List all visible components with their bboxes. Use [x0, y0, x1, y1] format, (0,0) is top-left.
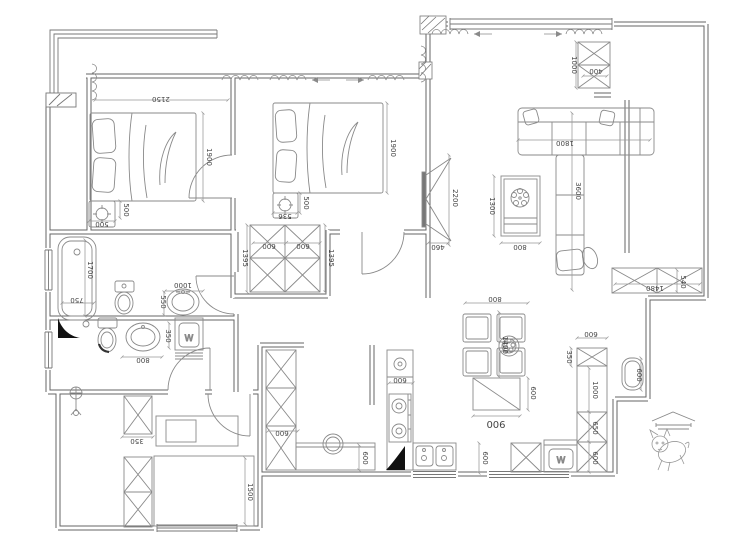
dim-label: 3600	[574, 182, 582, 200]
dim-label: 600	[296, 242, 309, 250]
bottom-cabinet	[511, 443, 541, 472]
dim-label: 1900	[205, 148, 213, 166]
dim-label: 800	[488, 295, 501, 303]
tatami-bed	[154, 456, 254, 526]
dim-label: 600	[584, 330, 597, 338]
dim-label: 350	[164, 329, 172, 342]
study-desk	[156, 416, 238, 446]
dim-label: 460	[431, 243, 444, 251]
floor-plan-page: W	[0, 0, 740, 550]
study-window	[154, 523, 240, 533]
west-window-1	[44, 248, 53, 292]
dim-label: 600	[481, 451, 489, 464]
top-window	[448, 17, 614, 31]
dim-label: 1000	[570, 56, 578, 74]
dim-label: 536	[278, 212, 292, 220]
door-bathroom	[196, 276, 234, 314]
dim-label: 1000	[174, 281, 192, 289]
gas-stove-icon	[389, 394, 411, 442]
west-window-2	[44, 330, 53, 370]
dim-label: 800	[513, 243, 526, 251]
dim-label: 1400	[501, 336, 509, 354]
dim-label: 600	[361, 451, 369, 464]
toilet-2	[98, 318, 117, 352]
bay-window	[46, 30, 217, 107]
sideboard	[473, 378, 520, 410]
dimension-labels: 2150 1900 500 500 1900 536 500 600 600 1…	[70, 56, 687, 501]
sink-counter	[413, 443, 456, 470]
study-cabinets	[124, 396, 152, 527]
curtain-bed1-left	[92, 64, 97, 100]
dim-label: 900	[486, 418, 505, 429]
dim-label: 1700	[86, 261, 94, 279]
dimension-lines	[62, 42, 700, 524]
dim-label: 1900	[389, 139, 397, 157]
dim-label: 600	[635, 368, 643, 381]
dim-label: 1300	[488, 197, 496, 215]
dim-label: 600	[275, 429, 288, 437]
washer2-label: W	[557, 456, 566, 466]
dim-label: 540	[679, 275, 687, 288]
dim-label: 500	[302, 196, 310, 209]
dim-label: 650	[591, 421, 599, 434]
double-sink-icon	[416, 446, 453, 466]
dim-label: 1800	[556, 139, 574, 147]
dim-label: 400	[589, 67, 602, 75]
washbasin-2	[126, 323, 160, 351]
entry-closet	[578, 42, 610, 88]
door-bedroom2	[362, 232, 404, 274]
dim-label: 600	[262, 242, 275, 250]
curtains	[92, 30, 602, 101]
toilet-1	[115, 281, 134, 314]
sofa	[518, 108, 654, 275]
dim-label: 1000	[591, 381, 599, 399]
dim-label: 600	[393, 376, 406, 384]
dim-label: 750	[70, 296, 83, 304]
door-laundry	[168, 348, 210, 390]
dim-label: 1480	[646, 284, 664, 292]
washing-machine-1: W	[175, 318, 203, 359]
dim-label: 1395	[327, 249, 335, 267]
double-bed-2	[273, 103, 383, 193]
kitchen-window-2	[487, 470, 571, 479]
corner-mark-kitchen	[386, 446, 405, 470]
dim-label: 500	[95, 220, 108, 228]
kitchen-tall-cabinets	[266, 350, 296, 470]
kitchen-window-1	[411, 470, 458, 479]
dim-label: 600	[529, 386, 537, 399]
dim-label: 2200	[451, 189, 459, 207]
dim-label: 1395	[241, 249, 249, 267]
washing-machine-2: W	[544, 440, 577, 472]
awning-icon	[652, 412, 695, 429]
washbasin-1	[167, 289, 199, 315]
corner-mark-bath	[58, 318, 89, 338]
dim-label: 550	[159, 295, 167, 308]
washer1-label: W	[185, 334, 194, 344]
double-bed-1	[90, 113, 196, 201]
door-study	[208, 394, 250, 436]
dim-label: 600	[591, 451, 599, 464]
dim-label: 2150	[152, 95, 170, 103]
dim-label: 500	[122, 203, 130, 216]
dim-label: 350	[130, 437, 143, 445]
dim-label: 800	[136, 356, 149, 364]
plant-icon	[511, 189, 529, 208]
wardrobe	[250, 225, 320, 292]
dim-label: 350	[565, 350, 573, 363]
floor-plan-canvas: W	[0, 0, 740, 550]
dog-illustration	[650, 429, 689, 471]
coffee-table	[501, 176, 540, 236]
dim-label: 1500	[246, 483, 254, 501]
wall-pier-hatch	[419, 16, 446, 79]
stove-counter	[386, 350, 413, 470]
